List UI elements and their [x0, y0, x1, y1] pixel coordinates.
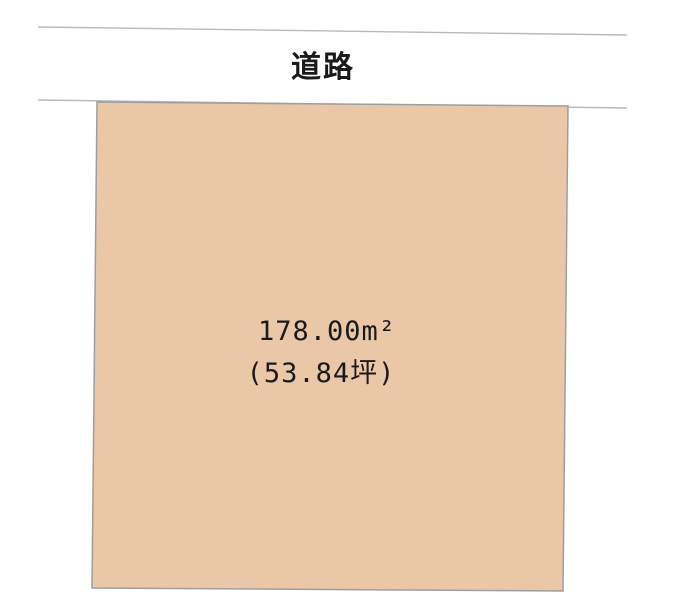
road-upper-edge-line	[38, 27, 627, 35]
diagram-canvas	[0, 0, 675, 605]
road-label: 道路	[291, 53, 355, 83]
parcel-area-square-meters: 178.00m²	[258, 318, 396, 345]
land-plot-diagram: 道路 178.00m² (53.84坪)	[0, 0, 675, 605]
parcel-area-tsubo: (53.84坪)	[247, 360, 396, 387]
